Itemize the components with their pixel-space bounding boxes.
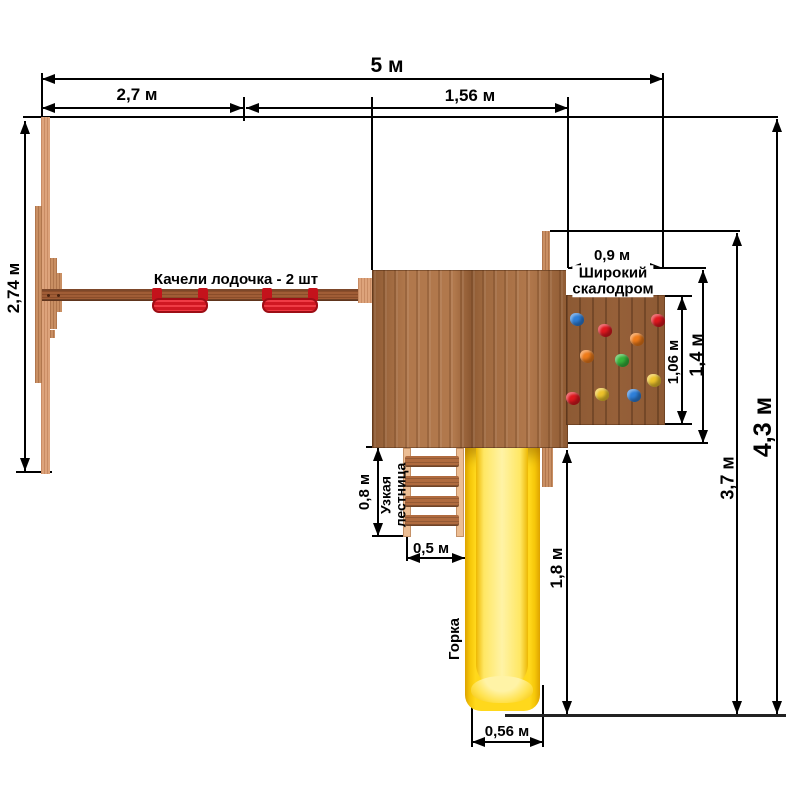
arrow-total-right-icon xyxy=(650,74,663,84)
ground-line xyxy=(505,714,786,717)
arrow-ladderlen-top-icon xyxy=(373,448,383,461)
arrow-totaldepth-top-icon xyxy=(772,119,782,132)
arrow-reardepth-top-icon xyxy=(732,233,742,246)
climbwall-annotation-line2: скалодром xyxy=(572,281,653,297)
slide-channel xyxy=(476,448,528,688)
playground-top-view-diagram: 5 м 2,7 м 1,56 м 2,74 м 0,9 м Широкий ск… xyxy=(0,0,800,800)
arrow-swingd-top-icon xyxy=(20,121,30,134)
swings-annotation: Качели лодочка - 2 шт xyxy=(154,272,318,288)
ladder-rung xyxy=(405,496,459,507)
ext-line-platform-right xyxy=(567,97,569,268)
dim-platform-width-label: 1,56 м xyxy=(445,87,495,105)
boat-swing-seat-2 xyxy=(262,298,318,313)
ext-line-wall-outer-bottom xyxy=(568,442,708,444)
ext-line-rear-post xyxy=(550,230,740,232)
climbwall-annotation: Широкий скалодром xyxy=(572,265,653,297)
red-climbing-hold-icon xyxy=(566,392,580,405)
arrow-platw-left-icon xyxy=(246,103,259,113)
blue-climbing-hold-icon xyxy=(570,313,584,326)
blue-climbing-hold-icon xyxy=(627,389,641,402)
arrow-total-left-icon xyxy=(42,74,55,84)
arrow-wallh-top-icon xyxy=(698,270,708,283)
arrow-slidelen-top-icon xyxy=(562,450,572,463)
beam-bolt xyxy=(57,294,60,297)
swing-frame-block-top xyxy=(50,258,57,273)
dim-total-width-label: 5 м xyxy=(370,55,403,77)
yellow-climbing-hold-icon xyxy=(595,388,609,401)
slide-side-rail xyxy=(542,448,553,487)
dim-slide-length-line xyxy=(566,450,568,714)
beam-bolt xyxy=(47,294,50,297)
ext-line-right xyxy=(662,73,664,268)
arrow-slidelen-bottom-icon xyxy=(562,701,572,714)
ladder-rung xyxy=(405,515,459,526)
dim-depth-rear-label: 3,7 м xyxy=(719,456,738,499)
arrow-slidew-right-icon xyxy=(530,737,543,747)
dim-ladder-width-label: 0,5 м xyxy=(413,541,449,557)
boat-swing-seat-1 xyxy=(152,298,208,313)
red-climbing-hold-icon xyxy=(651,314,665,327)
ladder-annotation: Узкая лестница xyxy=(378,463,407,528)
arrow-wallinner-top-icon xyxy=(677,297,687,310)
ladder-rung xyxy=(405,456,459,467)
orange-climbing-hold-icon xyxy=(580,350,594,363)
swing-frame-plank xyxy=(35,206,42,383)
arrow-swingw-left-icon xyxy=(42,103,55,113)
arrow-wallinner-bottom-icon xyxy=(677,411,687,424)
arrow-wallh-bottom-icon xyxy=(698,430,708,443)
dim-climbwall-width-label: 0,9 м xyxy=(594,248,630,264)
swing-frame-block-bottom xyxy=(50,312,57,329)
dim-wall-inner-label: 1,06 м xyxy=(666,340,682,384)
ladder-annotation-line2: лестница xyxy=(393,463,408,528)
ladder-annotation-line1: Узкая xyxy=(378,463,393,528)
ladder-rung xyxy=(405,476,459,487)
dim-slide-width-label: 0,56 м xyxy=(485,724,529,740)
arrow-ladderw-right-icon xyxy=(452,553,465,563)
dim-wall-height-label: 1,4 м xyxy=(688,333,707,376)
climbwall-annotation-line1: Широкий xyxy=(572,265,653,281)
swing-frame-block-small xyxy=(50,330,55,338)
slide-end-lip xyxy=(471,676,533,703)
yellow-climbing-hold-icon xyxy=(647,374,661,387)
beam-end-block xyxy=(358,278,372,303)
orange-climbing-hold-icon xyxy=(630,333,644,346)
red-climbing-hold-icon xyxy=(598,324,612,337)
dim-slide-length-label: 1,8 м xyxy=(548,548,566,589)
slide-chute xyxy=(465,448,540,711)
green-climbing-hold-icon xyxy=(615,354,629,367)
dim-swing-width-line xyxy=(42,107,243,109)
rear-post xyxy=(542,231,550,271)
arrow-totaldepth-bottom-icon xyxy=(772,701,782,714)
top-reference-line xyxy=(23,116,778,118)
arrow-swingw-right-icon xyxy=(230,103,243,113)
dim-total-width-line xyxy=(42,78,663,80)
dim-swing-depth-label: 2,74 м xyxy=(5,263,23,313)
arrow-slidew-left-icon xyxy=(472,737,485,747)
slide-annotation: Горка xyxy=(447,618,463,660)
climbing-wall xyxy=(566,295,665,425)
dim-swing-depth-line xyxy=(24,121,26,471)
dim-swing-width-label: 2,7 м xyxy=(117,86,158,104)
dim-platform-width-line xyxy=(246,107,568,109)
ext-line-mid xyxy=(243,97,245,121)
platform-deck xyxy=(372,270,568,448)
dim-total-depth-label: 4,3 м xyxy=(750,397,776,457)
ext-line-platform-left xyxy=(371,97,373,270)
arrow-swingd-bottom-icon xyxy=(20,458,30,471)
arrow-reardepth-bottom-icon xyxy=(732,701,742,714)
arrow-platw-right-icon xyxy=(555,103,568,113)
dim-ladder-length-label: 0,8 м xyxy=(357,474,373,510)
